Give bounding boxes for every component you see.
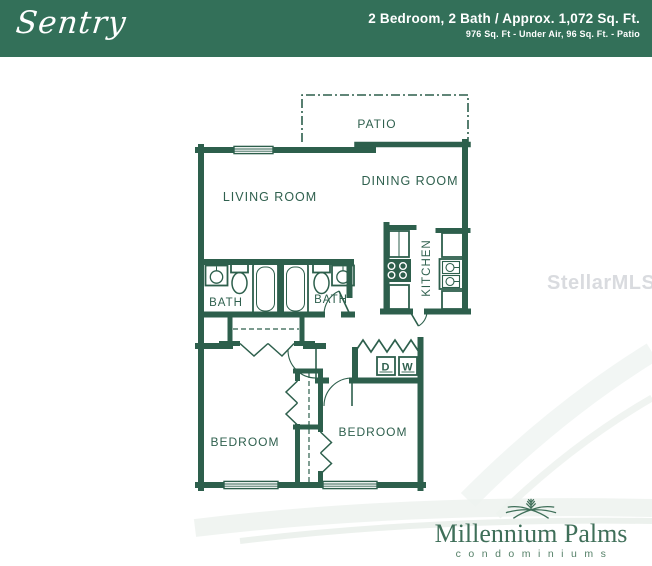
linen-closet [219,314,315,356]
window [224,481,278,488]
specs-line1: 2 Bedroom, 2 Bath / Approx. 1,072 Sq. Ft… [368,11,640,26]
refrigerator-icon [389,231,409,257]
header-specs: 2 Bedroom, 2 Bath / Approx. 1,072 Sq. Ft… [368,11,640,39]
bifold-door [355,340,419,352]
brand-subtitle: condominiums [416,548,646,560]
cabinet [442,291,463,309]
specs-line2: 976 Sq. Ft - Under Air, 96 Sq. Ft. - Pat… [368,29,640,39]
label-bath-right: BATH [314,294,348,306]
label-bath-left: BATH [209,297,243,309]
label-bedroom-right: BEDROOM [338,425,407,439]
window [234,146,273,153]
bathtub-icon [253,263,278,315]
bedroom-closets [286,369,332,486]
label-bedroom-left: BEDROOM [210,435,279,449]
watermark: StellarMLS [547,272,652,295]
cabinet [389,285,409,309]
label-dining-room: DINING ROOM [361,174,458,188]
bathtub-icon [283,263,308,315]
cabinet [442,233,463,257]
window [323,481,377,488]
palm-frond-icon [499,496,563,522]
bifold-door [321,432,332,474]
toilet-icon [313,264,330,294]
label-living-room: LIVING ROOM [223,190,317,204]
label-patio: PATIO [357,117,396,131]
bifold-door [286,381,298,425]
bifold-door [240,344,294,357]
label-washer: W [402,362,413,374]
toilet-icon [231,264,248,294]
bedroom-left-door [288,349,316,378]
stove-icon [385,260,411,282]
header-bar: Sentry 2 Bedroom, 2 Bath / Approx. 1,072… [0,0,652,57]
plan-name-title: Sentry [14,8,128,39]
label-dryer: D [382,362,391,374]
sink-icon [206,266,228,286]
brand-logo: Millennium Palms condominiums [416,496,646,560]
label-kitchen: KITCHEN [421,239,433,296]
kitchen-sink-icon [440,259,465,289]
brand-name: Millennium Palms [416,520,646,547]
